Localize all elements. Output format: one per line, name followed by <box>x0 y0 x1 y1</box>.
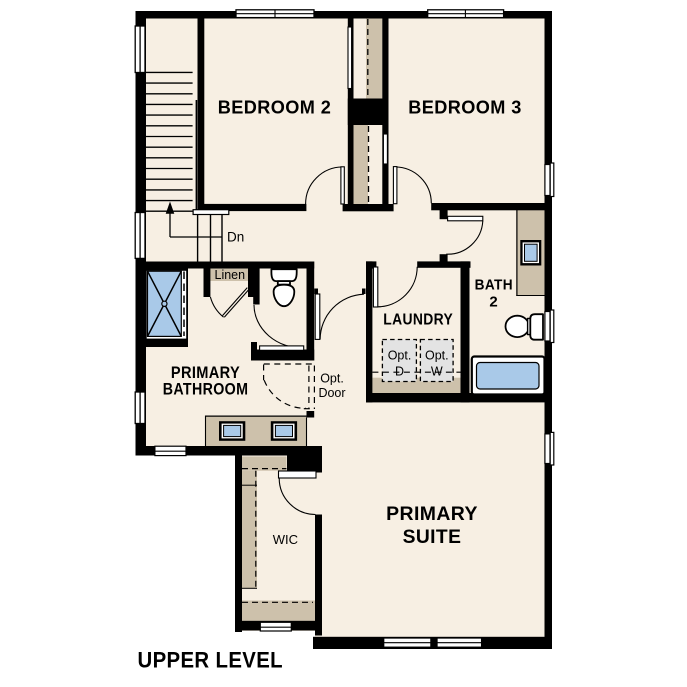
svg-text:SUITE: SUITE <box>403 526 462 548</box>
svg-text:Opt.: Opt. <box>425 349 449 363</box>
svg-text:Door: Door <box>318 386 345 400</box>
svg-text:PRIMARY: PRIMARY <box>386 503 478 525</box>
svg-text:BATH: BATH <box>475 277 513 294</box>
svg-text:Dn: Dn <box>227 230 244 245</box>
svg-text:BATHROOM: BATHROOM <box>163 381 249 399</box>
svg-text:Opt.: Opt. <box>320 372 344 386</box>
svg-text:UPPER LEVEL: UPPER LEVEL <box>138 648 284 673</box>
svg-text:WIC: WIC <box>273 532 298 547</box>
svg-text:2: 2 <box>489 294 498 311</box>
svg-text:PRIMARY: PRIMARY <box>171 364 240 382</box>
svg-text:BEDROOM 2: BEDROOM 2 <box>218 98 332 118</box>
svg-text:Linen: Linen <box>215 268 246 282</box>
svg-text:BEDROOM 3: BEDROOM 3 <box>408 98 522 118</box>
svg-text:D: D <box>395 365 404 379</box>
svg-text:W: W <box>431 365 443 379</box>
svg-text:LAUNDRY: LAUNDRY <box>383 312 453 329</box>
svg-text:Opt.: Opt. <box>388 349 412 363</box>
